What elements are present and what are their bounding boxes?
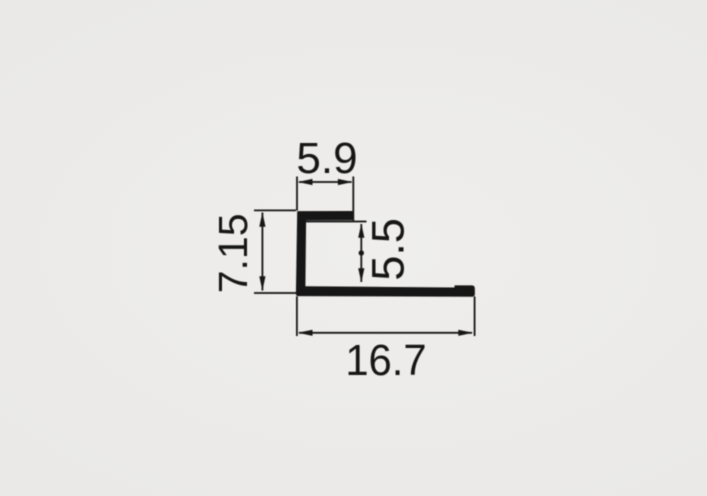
svg-text:5.9: 5.9 xyxy=(296,134,357,183)
svg-text:7.15: 7.15 xyxy=(210,213,256,293)
svg-text:16.7: 16.7 xyxy=(345,336,426,385)
svg-text:5.5: 5.5 xyxy=(363,218,414,281)
